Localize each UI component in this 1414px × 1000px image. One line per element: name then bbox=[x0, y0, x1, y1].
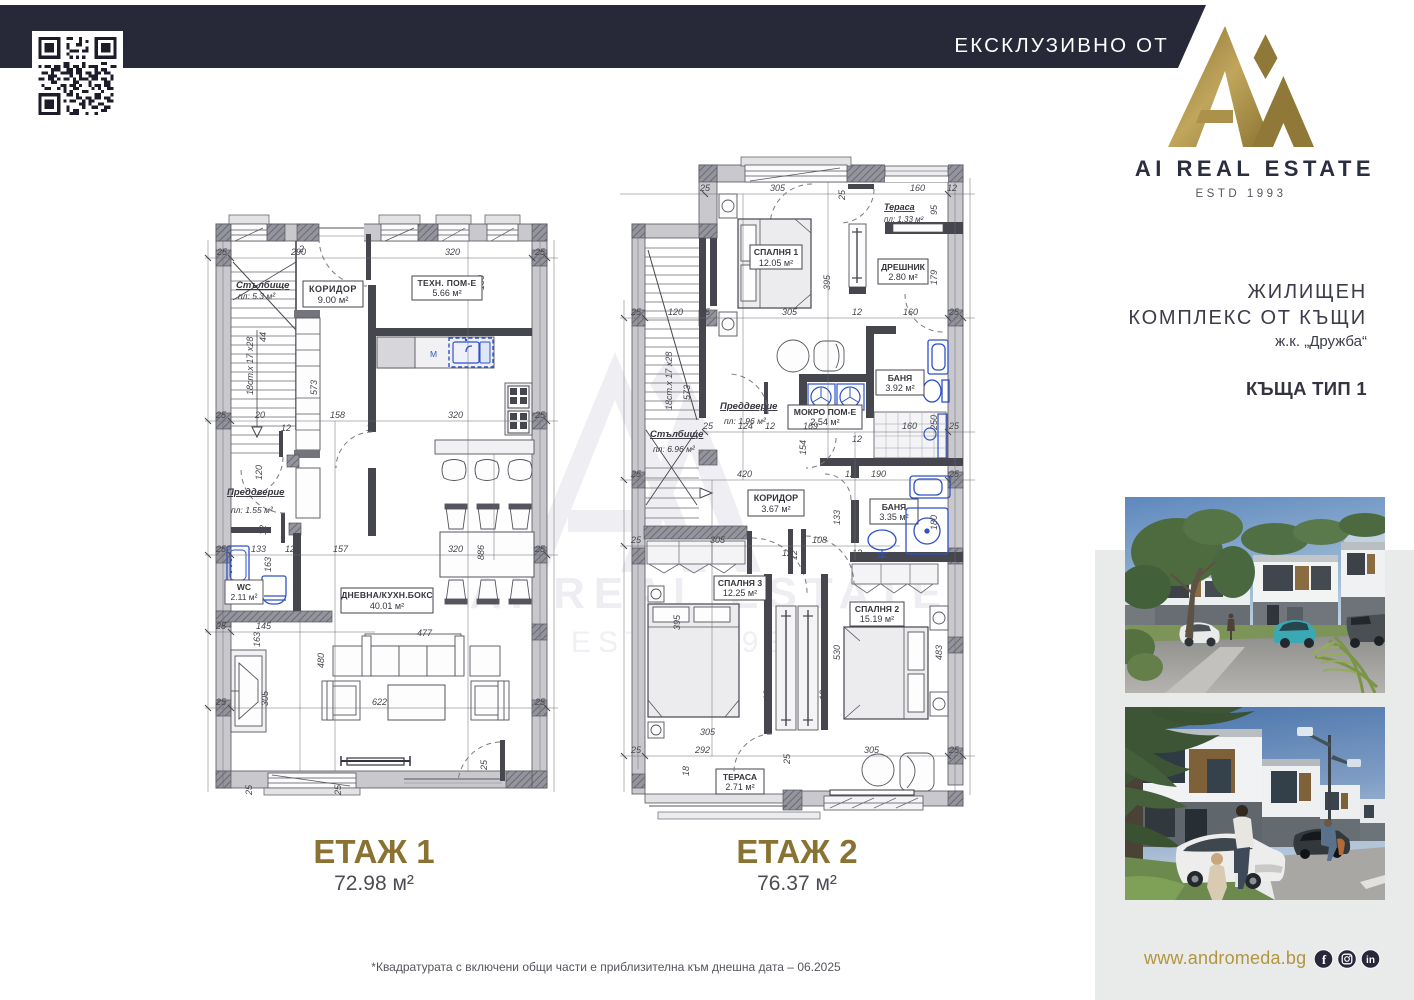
svg-text:12: 12 bbox=[366, 423, 376, 433]
svg-text:СПАЛНЯ 3: СПАЛНЯ 3 bbox=[718, 578, 762, 588]
svg-text:305: 305 bbox=[864, 745, 880, 755]
svg-text:250: 250 bbox=[929, 415, 939, 431]
svg-text:пл: 5.3 м²: пл: 5.3 м² bbox=[238, 291, 276, 301]
svg-text:25: 25 bbox=[699, 183, 711, 193]
svg-text:СПАЛНЯ 1: СПАЛНЯ 1 bbox=[754, 247, 798, 257]
svg-text:157: 157 bbox=[333, 544, 349, 554]
svg-text:158: 158 bbox=[330, 410, 345, 420]
svg-text:25: 25 bbox=[630, 535, 642, 545]
svg-text:160: 160 bbox=[902, 421, 917, 431]
svg-text:18ст.х 17 х28: 18ст.х 17 х28 bbox=[245, 337, 255, 395]
svg-text:WC: WC bbox=[237, 582, 251, 592]
svg-text:СПАЛНЯ 2: СПАЛНЯ 2 bbox=[855, 604, 899, 614]
svg-text:133: 133 bbox=[251, 544, 266, 554]
svg-text:320: 320 bbox=[448, 544, 463, 554]
svg-text:18: 18 bbox=[681, 766, 691, 776]
svg-text:120: 120 bbox=[668, 307, 683, 317]
svg-text:12: 12 bbox=[947, 183, 957, 193]
svg-text:3.67 м²: 3.67 м² bbox=[761, 504, 790, 514]
svg-text:M: M bbox=[430, 349, 437, 359]
svg-text:25: 25 bbox=[630, 307, 642, 317]
svg-text:25: 25 bbox=[630, 469, 642, 479]
svg-text:МОКРО ПОМ-Е: МОКРО ПОМ-Е bbox=[794, 407, 857, 417]
svg-text:25: 25 bbox=[244, 784, 254, 796]
svg-text:12.05 м²: 12.05 м² bbox=[759, 258, 793, 268]
svg-text:163: 163 bbox=[263, 557, 273, 572]
svg-text:КОРИДОР: КОРИДОР bbox=[754, 493, 798, 503]
svg-text:145: 145 bbox=[256, 621, 272, 631]
svg-text:25: 25 bbox=[702, 421, 714, 431]
svg-text:25: 25 bbox=[215, 697, 227, 707]
svg-text:Преддверие: Преддверие bbox=[720, 401, 778, 412]
svg-text:573: 573 bbox=[309, 380, 319, 395]
svg-text:БАНЯ: БАНЯ bbox=[882, 502, 906, 512]
svg-text:КОРИДОР: КОРИДОР bbox=[309, 284, 357, 294]
svg-text:622: 622 bbox=[372, 697, 387, 707]
svg-text:25: 25 bbox=[948, 421, 960, 431]
svg-text:25: 25 bbox=[782, 753, 792, 765]
svg-text:305: 305 bbox=[782, 307, 798, 317]
svg-text:120: 120 bbox=[254, 465, 264, 480]
svg-text:2.11 м²: 2.11 м² bbox=[231, 592, 258, 602]
svg-text:пл: 1.55 м²: пл: 1.55 м² bbox=[231, 505, 274, 515]
svg-text:886: 886 bbox=[476, 545, 486, 560]
svg-text:477: 477 bbox=[417, 628, 433, 638]
svg-text:169: 169 bbox=[803, 421, 818, 431]
svg-text:160: 160 bbox=[903, 307, 918, 317]
svg-text:25: 25 bbox=[215, 621, 227, 631]
svg-text:25: 25 bbox=[948, 469, 960, 479]
svg-text:25: 25 bbox=[333, 784, 343, 796]
svg-text:12: 12 bbox=[281, 423, 291, 433]
svg-text:25: 25 bbox=[837, 189, 847, 201]
svg-text:530: 530 bbox=[832, 645, 842, 660]
svg-text:Преддверие: Преддверие bbox=[227, 487, 285, 498]
svg-text:15.19 м²: 15.19 м² bbox=[860, 614, 894, 624]
svg-text:12: 12 bbox=[845, 469, 855, 479]
svg-text:25: 25 bbox=[479, 759, 489, 771]
svg-text:95: 95 bbox=[929, 204, 939, 215]
svg-text:305: 305 bbox=[260, 690, 270, 706]
svg-text:320: 320 bbox=[448, 410, 463, 420]
svg-text:12: 12 bbox=[789, 550, 799, 560]
svg-text:20: 20 bbox=[254, 410, 265, 420]
svg-text:12: 12 bbox=[762, 690, 772, 700]
svg-text:12: 12 bbox=[852, 307, 862, 317]
svg-text:133: 133 bbox=[832, 510, 842, 525]
svg-text:12: 12 bbox=[852, 434, 862, 444]
svg-text:ДНЕВНА/КУХН.БОКС: ДНЕВНА/КУХН.БОКС bbox=[341, 590, 433, 600]
svg-text:2.71 м²: 2.71 м² bbox=[725, 782, 754, 792]
svg-text:25: 25 bbox=[215, 544, 227, 554]
svg-text:395: 395 bbox=[672, 614, 682, 630]
svg-text:ДРЕШНИК: ДРЕШНИК bbox=[881, 262, 926, 272]
svg-text:124: 124 bbox=[738, 421, 753, 431]
svg-text:2: 2 bbox=[298, 244, 304, 254]
svg-text:in: in bbox=[1366, 955, 1375, 966]
svg-text:395: 395 bbox=[822, 274, 832, 290]
svg-text:44: 44 bbox=[258, 332, 268, 342]
svg-text:25: 25 bbox=[630, 745, 642, 755]
svg-text:483: 483 bbox=[934, 645, 944, 660]
svg-text:108: 108 bbox=[812, 535, 827, 545]
svg-text:18ст.х 17 х28: 18ст.х 17 х28 bbox=[664, 352, 674, 410]
svg-text:25: 25 bbox=[699, 307, 711, 317]
svg-text:190: 190 bbox=[871, 469, 886, 479]
svg-text:2.80 м²: 2.80 м² bbox=[888, 272, 917, 282]
svg-text:пл: 1.33 м²: пл: 1.33 м² bbox=[884, 215, 924, 224]
svg-text:305: 305 bbox=[710, 535, 726, 545]
svg-text:179: 179 bbox=[929, 270, 939, 285]
svg-text:25: 25 bbox=[948, 307, 960, 317]
svg-text:154: 154 bbox=[798, 440, 808, 455]
svg-text:пл: 6.96 м²: пл: 6.96 м² bbox=[653, 444, 696, 454]
svg-text:9.00 м²: 9.00 м² bbox=[318, 295, 349, 306]
svg-text:573: 573 bbox=[682, 385, 692, 400]
svg-text:320: 320 bbox=[445, 247, 460, 257]
svg-text:480: 480 bbox=[316, 653, 326, 668]
svg-text:25: 25 bbox=[215, 410, 227, 420]
svg-text:5.66 м²: 5.66 м² bbox=[432, 288, 461, 298]
svg-text:Стълбище: Стълбище bbox=[236, 280, 290, 291]
svg-text:12.25 м²: 12.25 м² bbox=[723, 588, 757, 598]
svg-text:Стълбище: Стълбище bbox=[650, 429, 704, 440]
svg-text:25: 25 bbox=[948, 745, 960, 755]
svg-text:40.01 м²: 40.01 м² bbox=[370, 601, 404, 611]
svg-text:ТЕРАСА: ТЕРАСА bbox=[723, 772, 757, 782]
svg-text:160: 160 bbox=[910, 183, 925, 193]
svg-text:f: f bbox=[1322, 952, 1327, 967]
svg-text:292: 292 bbox=[694, 745, 710, 755]
svg-text:12: 12 bbox=[818, 690, 828, 700]
svg-text:25: 25 bbox=[216, 247, 228, 257]
svg-text:305: 305 bbox=[700, 727, 716, 737]
svg-text:БАНЯ: БАНЯ bbox=[888, 373, 912, 383]
svg-text:180: 180 bbox=[929, 515, 939, 530]
svg-text:420: 420 bbox=[737, 469, 752, 479]
svg-text:163: 163 bbox=[252, 632, 262, 647]
svg-text:12: 12 bbox=[852, 548, 862, 558]
svg-text:3.35 м²: 3.35 м² bbox=[879, 512, 908, 522]
svg-text:Тераса: Тераса bbox=[884, 202, 915, 212]
svg-text:305: 305 bbox=[770, 183, 786, 193]
svg-text:12: 12 bbox=[258, 525, 268, 535]
svg-text:12: 12 bbox=[285, 544, 295, 554]
svg-text:ESTD 1993: ESTD 1993 bbox=[1196, 188, 1287, 200]
svg-text:3.92 м²: 3.92 м² bbox=[885, 383, 914, 393]
svg-text:ТЕХН. ПОМ-Е: ТЕХН. ПОМ-Е bbox=[418, 278, 477, 288]
svg-text:AI REAL ESTATE: AI REAL ESTATE bbox=[1135, 156, 1375, 181]
svg-text:12: 12 bbox=[765, 421, 775, 431]
